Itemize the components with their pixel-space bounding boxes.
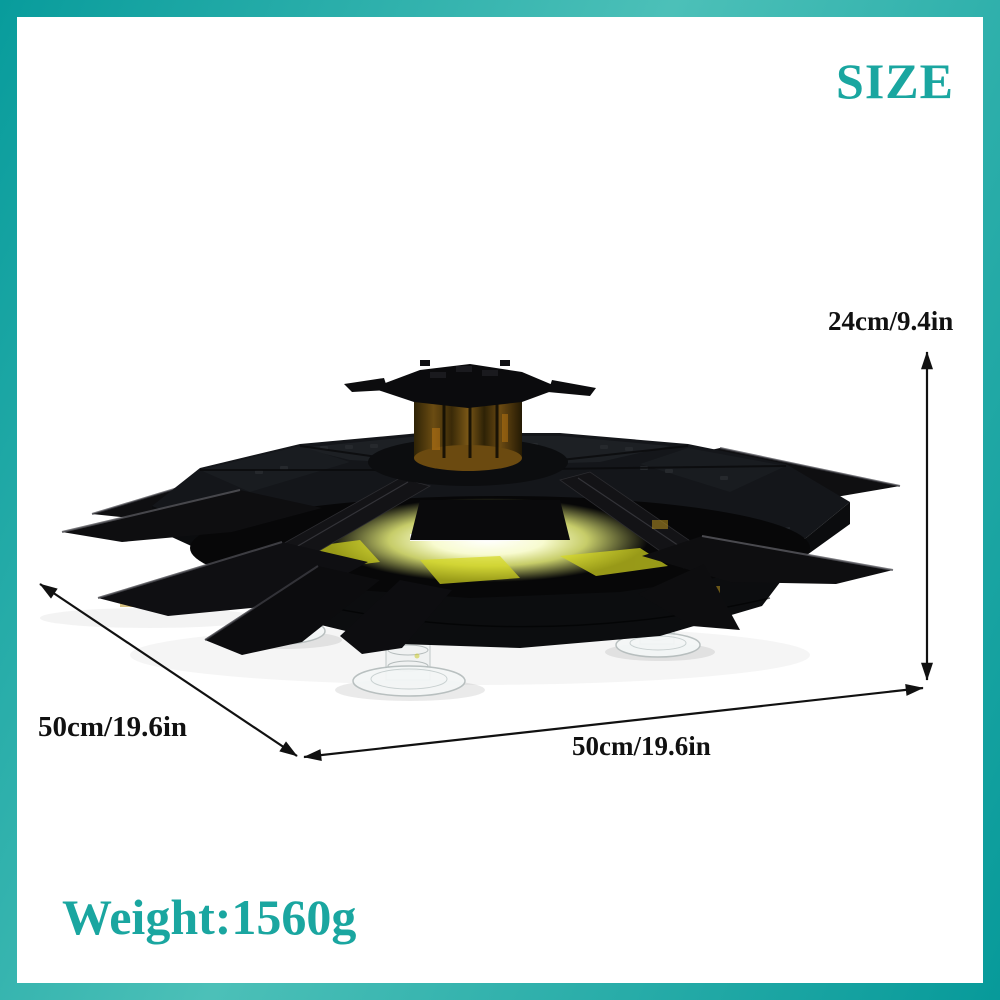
width-label: 50cm/19.6in [572,731,711,762]
weight-label: Weight:1560g [62,888,356,946]
height-label: 24cm/9.4in [828,306,953,337]
turret [344,360,596,486]
size-spec-page: SIZE 24cm/9.4in 50cm/19.6in 50cm/19.6in … [0,0,1000,1000]
size-title: SIZE [836,52,954,110]
ufo-model [62,360,900,655]
product-scene [0,0,1000,1000]
depth-label: 50cm/19.6in [38,711,187,744]
